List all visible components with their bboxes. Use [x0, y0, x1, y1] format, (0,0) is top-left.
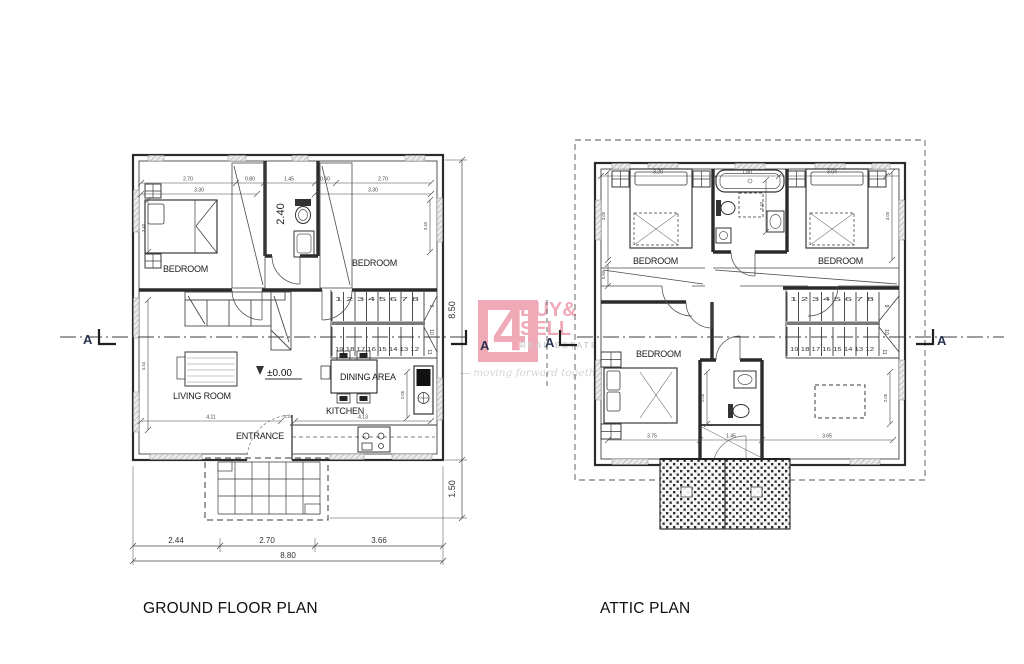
label-living-room: LIVING ROOM [173, 391, 231, 401]
dim: 2.70 [378, 177, 388, 183]
dim: 2.05 [700, 393, 705, 402]
dim: 2.70 [259, 536, 275, 545]
ground-stair-numbers-bottom: 19 18 17 16 15 14 13 12 [335, 347, 419, 353]
dim: 3.65 [822, 434, 832, 440]
attic-outer-walls [595, 163, 905, 465]
section-marker-a1: A [83, 332, 93, 347]
dim: 3.30 [194, 188, 204, 194]
dim: 4.44 [141, 361, 146, 370]
dim-porch-depth: 1.50 [447, 480, 457, 498]
dim: 2.44 [168, 536, 184, 545]
dim: 2.05 [400, 390, 405, 399]
ground-stair-11: 11 [426, 349, 432, 354]
dim: 2.70 [183, 177, 193, 183]
dim: 0.60 [601, 270, 606, 279]
dim: 2.05 [883, 393, 888, 402]
dim: 3.30 [368, 188, 378, 194]
dim: 3.40 [423, 221, 428, 230]
label-bedroom-left: BEDROOM [163, 264, 208, 274]
dim: 3.66 [371, 536, 387, 545]
dim: 4.11 [206, 415, 216, 421]
section-marker-a4: A [937, 333, 947, 348]
ground-floor-plan: 1 2 3 4 5 6 7 8 19 18 17 16 15 14 13 12 … [130, 155, 467, 617]
section-cut-mark [560, 330, 577, 345]
plan-drawing: 1 2 3 4 5 6 7 8 19 18 17 16 15 14 13 12 … [0, 0, 1024, 664]
label-dining-area: DINING AREA [340, 372, 396, 382]
dim: 2.40 [759, 201, 764, 210]
dim: 3.04 [827, 170, 837, 176]
attic-stair-numbers-top: 1 2 3 4 5 6 7 8 [790, 297, 875, 303]
ground-stair-9: 9 [428, 305, 434, 308]
dim: 1.45 [284, 177, 294, 183]
attic-plan-title: ATTIC PLAN [600, 600, 690, 617]
attic-plan: 1 2 3 4 5 6 7 8 19 18 17 16 15 14 13 12 … [575, 140, 925, 617]
label-bedroom-bl: BEDROOM [636, 349, 681, 359]
bath-depth-dim: 2.40 [275, 203, 287, 224]
label-bedroom-tr: BEDROOM [818, 256, 863, 266]
dim: 0.60 [320, 177, 330, 183]
floor-plan-sheet: 4 BUY& SELL REAL ESTATE moving forward t… [0, 0, 1024, 664]
dim: 1.80 [742, 170, 752, 176]
ground-plan-title: GROUND FLOOR PLAN [143, 600, 318, 617]
dim: 3.00 [601, 211, 606, 220]
dim: 3.00 [885, 211, 890, 220]
dim: 4.13 [358, 415, 368, 421]
dim: 3.75 [647, 434, 657, 440]
section-marker-a3: A [545, 335, 555, 350]
dim: 1.45 [726, 434, 736, 440]
label-bedroom-tl: BEDROOM [633, 256, 678, 266]
attic-stair-numbers-bottom: 19 18 17 16 15 14 13 12 [790, 347, 874, 353]
dim-height-total: 8.50 [447, 301, 457, 319]
ground-stair-numbers-top: 1 2 3 4 5 6 7 8 [335, 297, 420, 303]
label-bedroom-right: BEDROOM [352, 258, 397, 268]
porch [205, 458, 328, 520]
dim: 0.80 [245, 177, 255, 183]
section-marker-a2: A [480, 338, 490, 353]
dim: 3.20 [653, 170, 663, 176]
ground-stair-10: 10 [428, 329, 434, 335]
dim-bottom-total: 8.80 [280, 551, 296, 560]
dim: 0.24 [284, 414, 293, 419]
attic-stair-10: 10 [883, 329, 889, 335]
level-text: ±0.00 [267, 368, 292, 379]
attic-balcony [660, 459, 790, 529]
attic-stair-11: 11 [881, 349, 887, 354]
label-entrance: ENTRANCE [236, 431, 284, 441]
attic-stair-9: 9 [883, 305, 889, 308]
dim: 3.40 [141, 223, 146, 232]
